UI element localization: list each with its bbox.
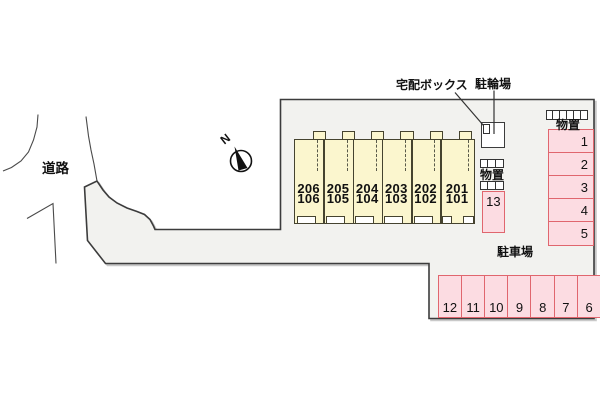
unit-entrance-notch	[326, 216, 345, 224]
parking-space-6: 6	[577, 275, 600, 319]
parking-space-number: 5	[581, 226, 588, 241]
parking-space-9: 9	[507, 275, 532, 319]
unit-lower-number: 106	[297, 194, 320, 205]
unit-label-206-106: 206 106	[294, 181, 323, 207]
road-label: 道路	[42, 163, 69, 175]
parking-space-number: 4	[581, 203, 588, 218]
unit-entrance-notch	[297, 216, 316, 224]
unit-lower-number: 104	[356, 194, 379, 205]
unit-dashed-line	[468, 140, 469, 171]
road-corner-line	[27, 204, 56, 264]
bicycle-parking-label: 駐輪場	[475, 78, 511, 90]
unit-entrance-notch	[463, 216, 474, 224]
parking-space-4: 4	[548, 198, 595, 223]
unit-dashed-line	[405, 140, 406, 171]
storage-label-mid: 物置	[480, 169, 504, 181]
delivery-box-label: 宅配ボックス	[396, 79, 468, 91]
parking-space-number: 2	[581, 157, 588, 172]
unit-label-205-105: 205 105	[323, 181, 352, 207]
unit-label-204-104: 204 104	[353, 181, 382, 207]
parking-space-1: 1	[548, 129, 595, 154]
parking-space-12: 12	[438, 275, 463, 319]
parking-space-number: 3	[581, 180, 588, 195]
unit-lower-number: 102	[414, 194, 437, 205]
unit-lower-number: 101	[446, 194, 469, 205]
road-edge-left	[3, 115, 38, 172]
storage-cell	[495, 159, 504, 168]
unit-label-201-101: 201 101	[440, 181, 474, 207]
parking-lot-label: 駐車場	[497, 246, 533, 258]
unit-dashed-line	[317, 140, 318, 171]
unit-entrance-notch	[442, 216, 452, 224]
parking-space-number: 12	[443, 300, 457, 315]
parking-space-number: 6	[586, 300, 593, 315]
unit-dashed-line	[376, 140, 377, 171]
parking-bottom-row: 12 11 10 9 8 7 6	[438, 275, 600, 319]
parking-space-number: 9	[516, 300, 523, 315]
parking-space-number: 13	[486, 194, 500, 209]
storage-units-row-mid-lower	[480, 181, 505, 190]
storage-units-row-mid-upper	[480, 159, 505, 168]
unit-dashed-line	[347, 140, 348, 171]
parking-right-column: 1 2 3 4 5	[548, 129, 595, 246]
unit-dashed-line	[434, 140, 435, 171]
parking-space-number: 10	[489, 300, 503, 315]
parking-space-2: 2	[548, 152, 595, 177]
unit-label-203-103: 203 103	[382, 181, 411, 207]
parking-space-number: 8	[539, 300, 546, 315]
storage-cell	[580, 110, 588, 120]
parking-space-7: 7	[554, 275, 579, 319]
parking-space-8: 8	[530, 275, 555, 319]
storage-label-top: 物置	[556, 119, 580, 131]
parking-space-13: 13	[482, 191, 506, 234]
parking-space-3: 3	[548, 175, 595, 200]
parking-space-number: 7	[562, 300, 569, 315]
road-edge-right	[86, 117, 97, 182]
unit-entrance-notch	[384, 216, 403, 224]
unit-entrance-notch	[355, 216, 374, 224]
storage-cell	[495, 181, 504, 190]
parking-space-number: 1	[581, 134, 588, 149]
unit-label-202-102: 202 102	[411, 181, 440, 207]
parking-space-number: 11	[466, 300, 480, 315]
site-plan: N 道路 206 106 205 105 204 104 203 103	[0, 0, 600, 400]
parking-space-11: 11	[461, 275, 486, 319]
unit-lower-number: 103	[385, 194, 408, 205]
unit-entrance-notch	[414, 216, 433, 224]
unit-lower-number: 105	[327, 194, 350, 205]
parking-space-10: 10	[484, 275, 509, 319]
parking-space-5: 5	[548, 221, 595, 246]
delivery-box	[483, 124, 490, 134]
